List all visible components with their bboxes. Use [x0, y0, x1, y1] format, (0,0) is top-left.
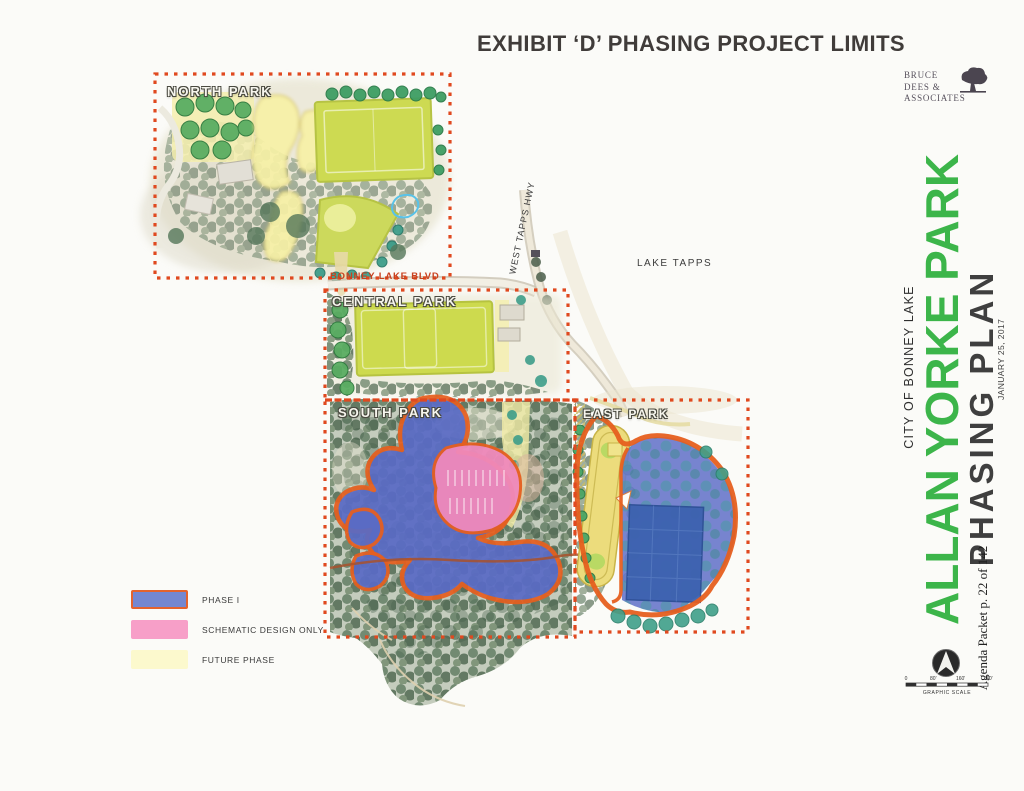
south-park-plan [330, 397, 602, 706]
bonney-lake-blvd-label: BONNEY LAKE BLVD [330, 271, 440, 282]
south-schematic-area [434, 444, 521, 533]
graphic-scale-caption: GRAPHIC SCALE [923, 690, 971, 696]
north-arrow-icon [933, 650, 960, 677]
scale-tick-0: 0 [905, 676, 908, 682]
city-name: CITY OF BONNEY LAKE [903, 282, 916, 452]
north-park-label: NORTH PARK [167, 84, 273, 99]
north-park-plan [140, 78, 450, 296]
central-park-label: CENTRAL PARK [332, 294, 457, 309]
schematic-label: SCHEMATIC DESIGN ONLY [202, 625, 324, 635]
future-swatch [131, 650, 188, 669]
scale-tick-80: 80' [930, 676, 937, 682]
east-park-label: EAST PARK [583, 407, 669, 421]
north-arrow-and-scale: 0 80' 160' 240' GRAPHIC SCALE [898, 646, 1002, 702]
phase1-label: PHASE I [202, 595, 240, 605]
south-park-label: SOUTH PARK [338, 405, 443, 420]
graphic-scale-bar: 0 80' 160' 240' GRAPHIC SCALE [905, 676, 993, 696]
lake-tapps-label: LAKE TAPPS [637, 258, 712, 269]
park-name: ALLAN YORKE PARK [919, 160, 965, 625]
plan-name: PHASING PLAN [965, 260, 998, 575]
legend-row-phase1: PHASE I [131, 590, 324, 609]
future-label: FUTURE PHASE [202, 655, 275, 665]
plan-sheet: EXHIBIT ‘D’ PHASING PROJECT LIMITS NORTH… [0, 0, 1024, 791]
legend-row-future: FUTURE PHASE [131, 650, 324, 669]
legend-row-schematic: SCHEMATIC DESIGN ONLY [131, 620, 324, 639]
phase1-swatch [131, 590, 188, 609]
plan-date: JANUARY 25, 2017 [997, 336, 1006, 400]
scale-tick-240: 240' [983, 676, 992, 682]
scale-tick-160: 160' [956, 676, 965, 682]
firm-tree-icon [956, 64, 990, 98]
legend: PHASE I SCHEMATIC DESIGN ONLY FUTURE PHA… [131, 590, 324, 680]
schematic-swatch [131, 620, 188, 639]
exhibit-title: EXHIBIT ‘D’ PHASING PROJECT LIMITS [477, 31, 905, 57]
